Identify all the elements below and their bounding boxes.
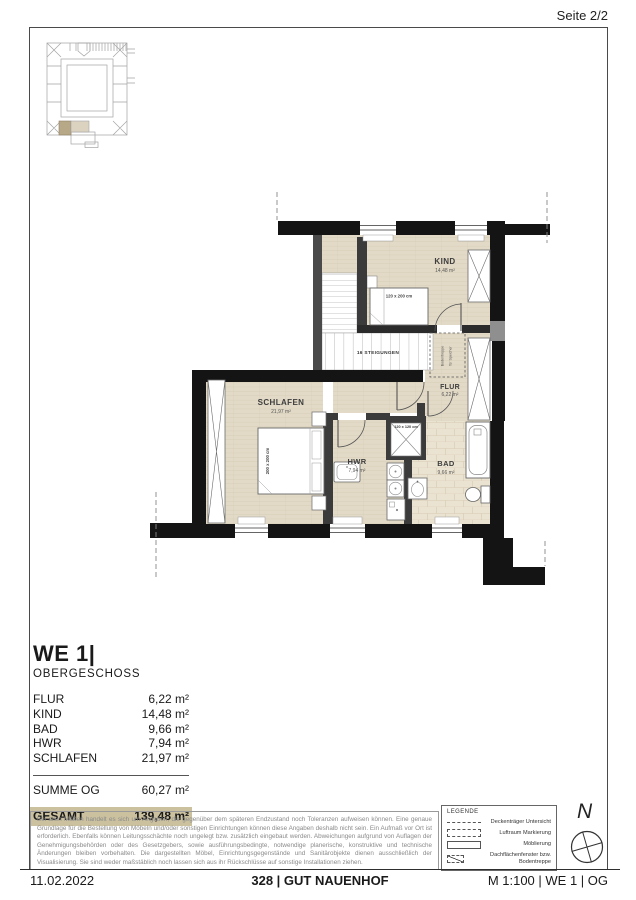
legend-item: Deckenträger Untersicht [447, 819, 551, 825]
area-row: SCHLAFEN21,97 m² [33, 751, 189, 766]
floor-title: OBERGESCHOSS [33, 668, 189, 680]
attic-ladder-label-1: Bodentreppe [441, 346, 445, 367]
bathtub [466, 422, 490, 478]
sink [408, 478, 427, 499]
compass-icon [568, 828, 606, 866]
north-label: N [577, 800, 592, 824]
title-block-footer: 11.02.2022 328 | GUT NAUENHOF M 1:100 | … [20, 873, 620, 893]
area-row: FLUR6,22 m² [33, 692, 189, 707]
nightstand [312, 496, 326, 510]
keyplan-unit-highlight [59, 121, 89, 135]
nightstand [312, 412, 326, 426]
disclaimer-text: Bei allen Maßen handelt es sich um Angab… [30, 811, 439, 870]
floor-plan: 120 x 200 cm 200 x 200 cm 120 x 120 cm [140, 183, 555, 608]
area-row-value: 21,97 m² [142, 751, 189, 766]
shower-size-label: 120 x 120 cm [394, 425, 418, 429]
area-row-label: KIND [33, 707, 62, 722]
footer-divider [20, 869, 620, 870]
legend-item: Luftraum Markierung [447, 829, 551, 837]
room-area-flur: 6,22 m² [442, 392, 459, 398]
washer-dryer [387, 463, 405, 520]
room-label-bad: BAD [437, 459, 455, 468]
bed-kind: 120 x 200 cm [370, 288, 428, 325]
room-label-kind: KIND [434, 257, 455, 266]
room-area-kind: 14,48 m² [435, 268, 455, 274]
subtotal-row: SUMME OG60,27 m² [33, 783, 189, 798]
area-row-value: 6,22 m² [148, 692, 189, 707]
bed-kind-size-label: 120 x 200 cm [386, 294, 413, 299]
area-row: BAD9,66 m² [33, 722, 189, 737]
area-row-label: BAD [33, 722, 58, 737]
room-area-schlafen: 21,97 m² [271, 409, 291, 415]
dashed-diagonal-rect-symbol [447, 855, 485, 863]
area-row-value: 14,48 m² [142, 707, 189, 722]
summary-divider [33, 775, 189, 776]
area-row: HWR7,94 m² [33, 736, 189, 751]
page-number: Seite 2/2 [557, 8, 608, 23]
dashdot-rect-symbol [447, 829, 485, 837]
room-label-flur: FLUR [440, 384, 460, 391]
area-row-label: FLUR [33, 692, 64, 707]
area-row-value: 9,66 m² [148, 722, 189, 737]
area-summary: WE 1| OBERGESCHOSS FLUR6,22 m² KIND14,48… [33, 641, 189, 826]
shower: 120 x 120 cm [386, 416, 426, 460]
room-label-hwr: HWR [347, 457, 366, 466]
dashed-line-symbol [447, 822, 485, 823]
room-label-schlafen: SCHLAFEN [258, 398, 305, 407]
area-row: KIND14,48 m² [33, 707, 189, 722]
room-area-bad: 9,66 m² [438, 470, 455, 476]
site-key-plan [40, 36, 135, 148]
stairs-label: 16 STEIGUNGEN [357, 350, 400, 356]
room-area-hwr: 7,94 m² [349, 468, 366, 474]
area-row-label: HWR [33, 736, 62, 751]
legend-item: Möblierung [447, 841, 551, 849]
bed-schlafen-size-label: 200 x 200 cm [265, 448, 270, 475]
solid-rect-symbol [447, 841, 485, 849]
legend-item: Dachflächenfenster bzw. Bodentreppe [447, 852, 551, 865]
area-row-value: 7,94 m² [148, 736, 189, 751]
scale-info: M 1:100 | WE 1 | OG [488, 873, 608, 888]
attic-ladder-label-2: für Speicher [449, 346, 453, 366]
unit-title: WE 1| [33, 641, 189, 667]
area-row-label: SCHLAFEN [33, 751, 97, 766]
legend: LEGENDE Deckenträger Untersicht Luftraum… [441, 805, 557, 871]
legend-title: LEGENDE [447, 809, 551, 815]
